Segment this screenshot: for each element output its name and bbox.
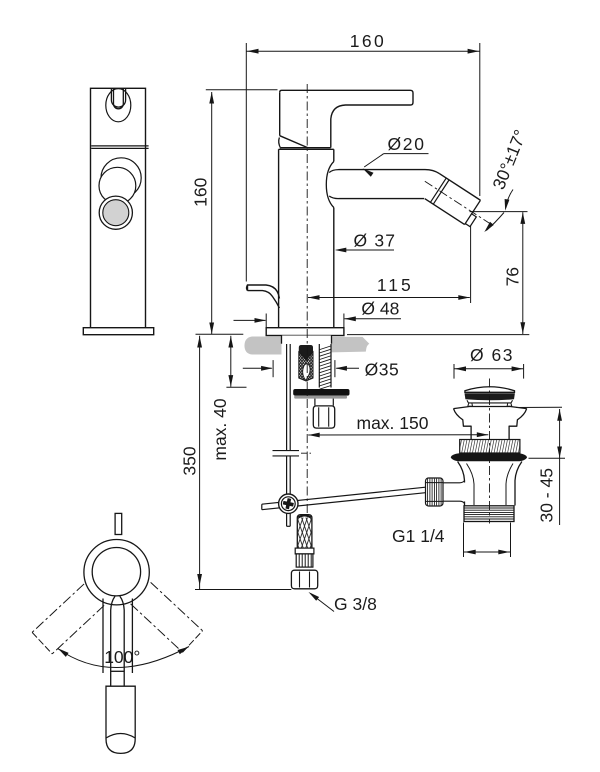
svg-text:160: 160 [350, 31, 386, 51]
svg-text:76: 76 [503, 267, 523, 286]
svg-text:Ø35: Ø35 [365, 359, 400, 379]
svg-text:160: 160 [190, 177, 210, 206]
svg-text:Ø 37: Ø 37 [354, 231, 397, 251]
svg-text:G 3/8: G 3/8 [334, 594, 377, 614]
svg-text:115: 115 [377, 275, 414, 295]
svg-text:max. 150: max. 150 [357, 413, 429, 433]
svg-text:100°: 100° [104, 647, 140, 667]
svg-text:Ø 63: Ø 63 [470, 345, 514, 365]
svg-text:Ø20: Ø20 [388, 134, 426, 154]
svg-text:350: 350 [179, 446, 199, 475]
svg-text:30 - 45: 30 - 45 [537, 468, 557, 522]
svg-text:G1 1/4: G1 1/4 [392, 526, 445, 546]
svg-text:max. 40: max. 40 [210, 398, 230, 461]
svg-text:Ø 48: Ø 48 [361, 299, 399, 319]
